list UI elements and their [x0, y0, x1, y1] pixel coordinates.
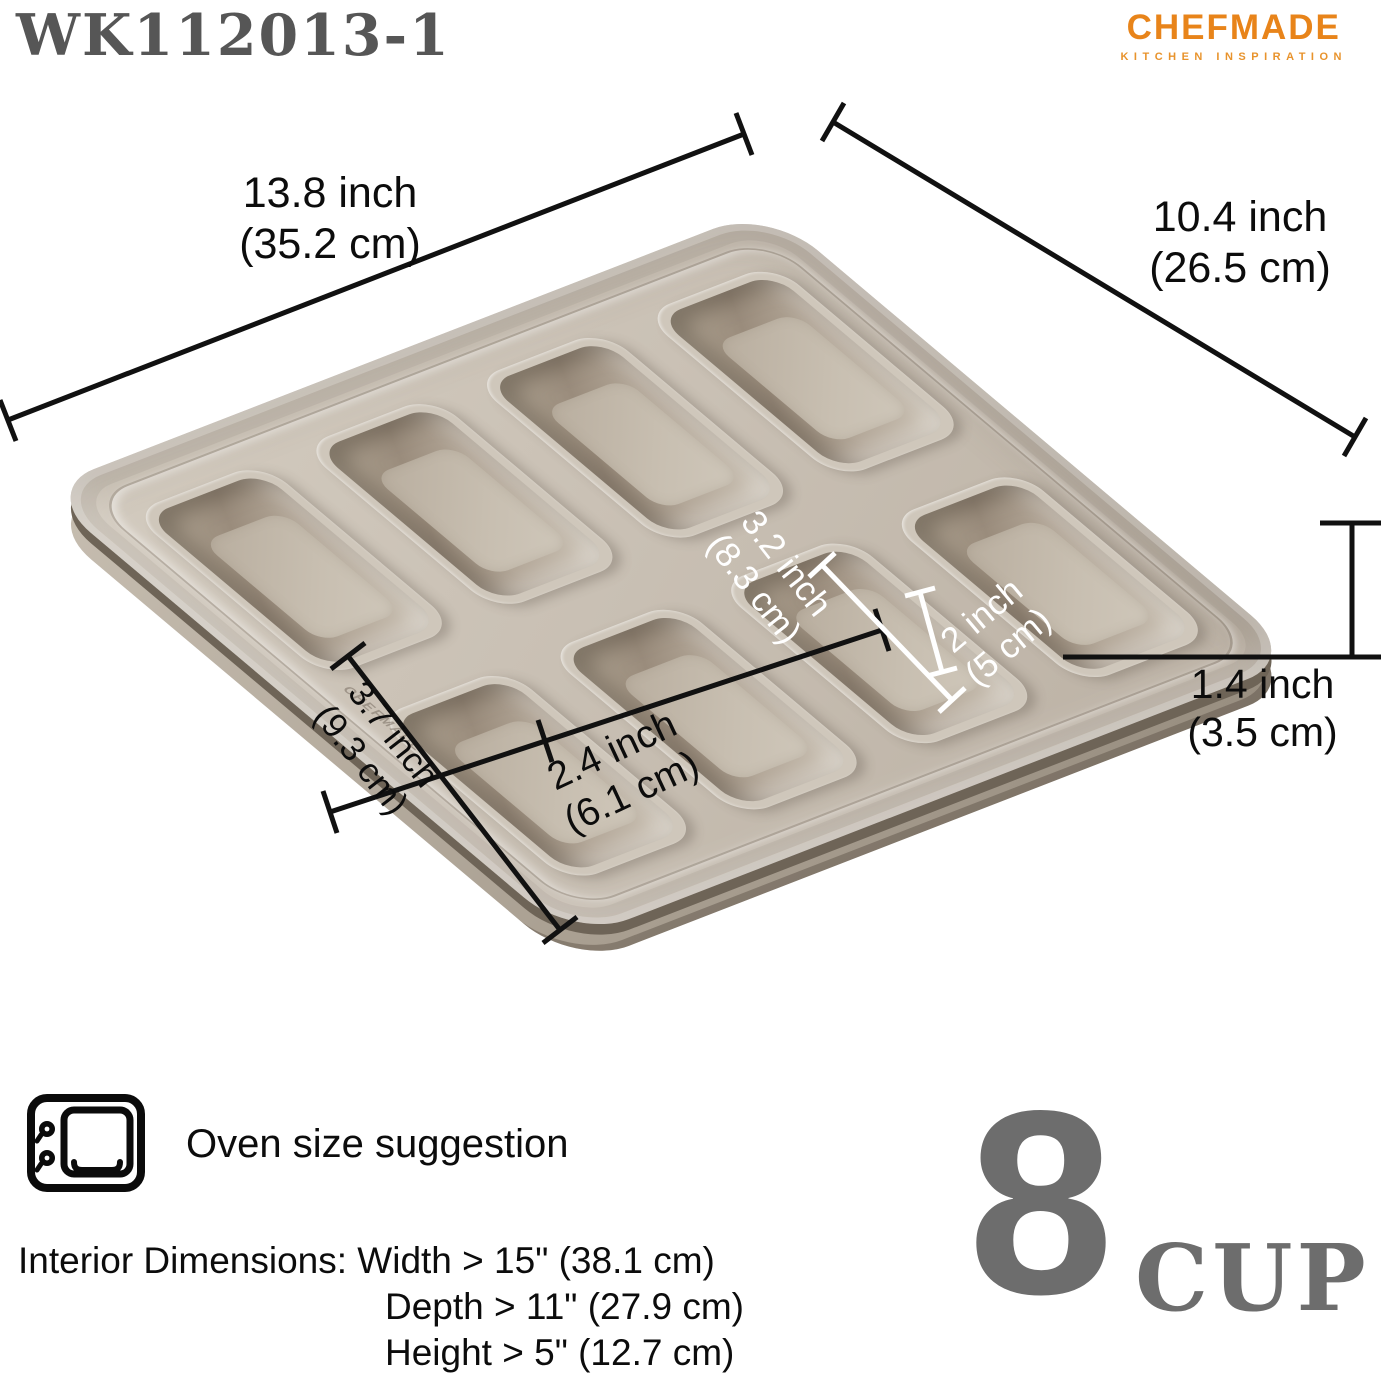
model-number: WK112013-1: [16, 2, 451, 69]
width-value: 10.4 inch: [1090, 192, 1381, 243]
height-value: 1.4 inch: [1135, 660, 1381, 708]
interior-depth-row: Depth > 11" (27.9 cm): [18, 1284, 744, 1330]
cup-count-unit: CUP: [1135, 1232, 1370, 1324]
oven-size-suggestion-label: Oven size suggestion: [186, 1122, 568, 1167]
interior-depth-spec: Depth > 11" (27.9 cm): [385, 1286, 744, 1327]
interior-dimensions-block: Interior Dimensions: Width > 15" (38.1 c…: [18, 1238, 744, 1376]
length-value: 13.8 inch: [155, 168, 505, 219]
cavity-floor: [372, 445, 573, 577]
length-dimension-label: 13.8 inch (35.2 cm): [155, 168, 505, 269]
oven-icon: [26, 1092, 146, 1194]
width-dimension-label: 10.4 inch (26.5 cm): [1090, 192, 1381, 293]
interior-width-row: Interior Dimensions: Width > 15" (38.1 c…: [18, 1238, 744, 1284]
length-value-metric: (35.2 cm): [155, 219, 505, 270]
pan-top-surface: CHEFMADE: [40, 208, 1302, 940]
cavity-floor: [201, 511, 402, 643]
interior-width-spec: Width > 15" (38.1 cm): [357, 1240, 715, 1281]
height-dimension-label: 1.4 inch (3.5 cm): [1135, 660, 1381, 757]
cavity-floor: [713, 312, 914, 444]
cavity-grid: [40, 208, 1302, 940]
cup-count-number: 8: [968, 1072, 1114, 1334]
loaf-pan: CHEFMADE: [40, 208, 1302, 940]
height-value-metric: (3.5 cm): [1135, 708, 1381, 756]
width-value-metric: (26.5 cm): [1090, 243, 1381, 294]
brand-logo: CHEFMADE KITCHEN INSPIRATION: [1120, 8, 1347, 63]
brand-name: CHEFMADE: [1120, 8, 1347, 48]
interior-dimensions-intro: Interior Dimensions:: [18, 1240, 347, 1281]
interior-height-spec: Height > 5" (12.7 cm): [385, 1332, 734, 1373]
brand-tagline: KITCHEN INSPIRATION: [1120, 51, 1347, 63]
interior-height-row: Height > 5" (12.7 cm): [18, 1330, 744, 1376]
